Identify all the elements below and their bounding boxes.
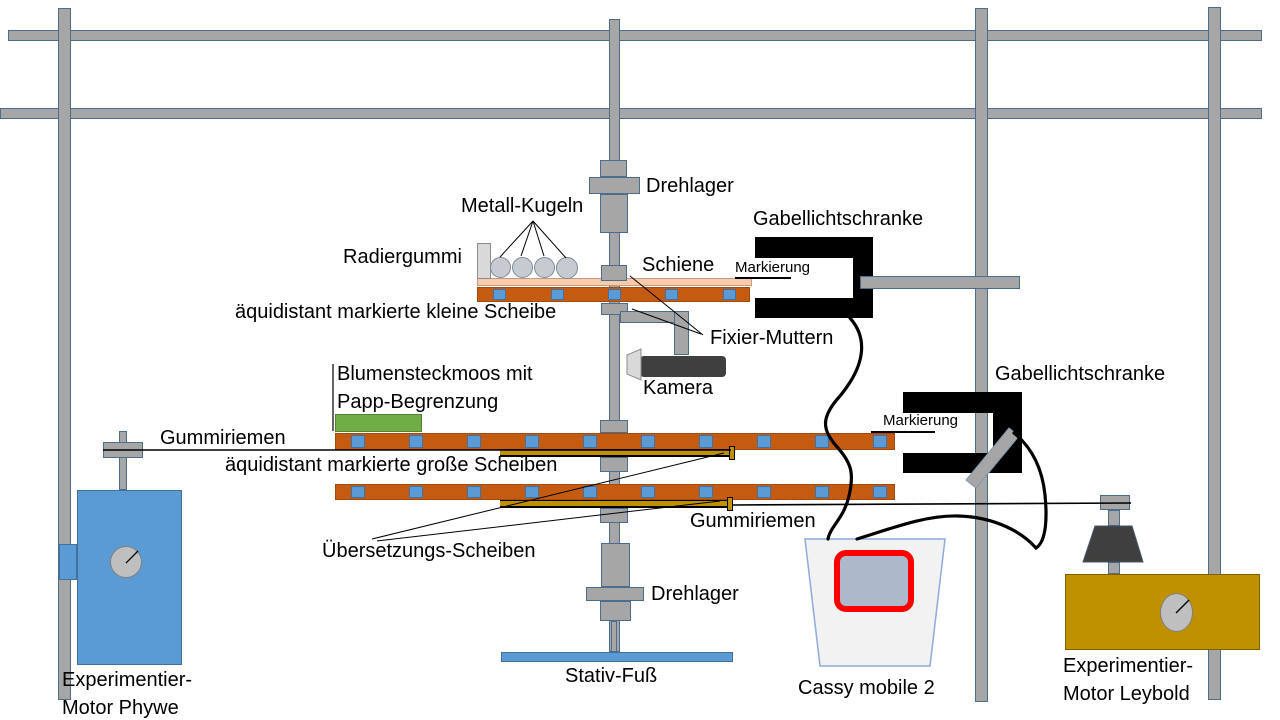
label-stativ-fuss: Stativ-Fuß — [565, 665, 657, 687]
camera-arm-vertical — [674, 311, 689, 355]
label-blumensteckmoos-line2: Papp-Begrenzung — [337, 391, 498, 413]
label-gummiriemen-left: Gummiriemen — [160, 427, 286, 449]
label-fixier-muttern: Fixier-Muttern — [710, 327, 833, 349]
cable-light-barrier-top-to-cassy — [826, 318, 862, 539]
label-gabellichtschranke-top: Gabellichtschranke — [753, 208, 923, 230]
frame-vertical-bar-middle-right — [975, 8, 988, 702]
label-cassy-mobile: Cassy mobile 2 — [798, 677, 935, 699]
left-motor-axle — [119, 431, 127, 490]
label-motor-phywe-line1: Experimentier- — [62, 669, 192, 691]
label-markierung-right: Markierung — [883, 412, 958, 429]
label-schiene: Schiene — [642, 254, 714, 276]
axle-hub — [600, 457, 628, 472]
label-metall-kugeln: Metall-Kugeln — [461, 195, 583, 217]
metal-ball — [512, 257, 533, 278]
transmission-pulley-upper-cap — [729, 446, 735, 460]
label-grosse-scheiben: äquidistant markierte große Scheiben — [225, 454, 557, 476]
right-motor-cone-pulley — [1083, 526, 1143, 562]
frame-horizontal-bar-second — [0, 108, 1262, 119]
left-motor-dial — [110, 546, 142, 578]
label-motor-phywe: Experimentier- Motor Phywe — [62, 666, 192, 720]
left-motor-side-tab — [59, 544, 77, 580]
foam-block — [335, 414, 422, 432]
camera-body — [640, 356, 726, 377]
label-motor-leybold-line1: Experimentier- — [1063, 655, 1193, 677]
axle-hub — [600, 508, 628, 523]
transmission-pulley-lower — [500, 500, 730, 508]
small-marked-disc — [477, 287, 750, 302]
pivot-bearing-top-block — [600, 160, 627, 177]
right-motor-axle-upper — [1108, 510, 1120, 526]
label-motor-phywe-line2: Motor Phywe — [62, 697, 179, 719]
label-drehlager-top: Drehlager — [646, 175, 734, 197]
label-gabellichtschranke-right: Gabellichtschranke — [995, 363, 1165, 385]
label-gummiriemen-right: Gummiriemen — [690, 510, 816, 532]
leader-metall-kugeln — [500, 221, 566, 258]
frame-horizontal-bar-top — [8, 30, 1262, 41]
fixing-nut-upper — [601, 265, 627, 281]
label-motor-leybold: Experimentier- Motor Leybold — [1063, 652, 1193, 708]
light-barrier-top-mounting-bar — [860, 276, 1020, 289]
right-motor-dial — [1160, 593, 1193, 632]
markierung-right-underline — [871, 431, 935, 433]
axle-hub — [600, 420, 628, 433]
frame-vertical-bar-left — [58, 8, 71, 700]
light-barrier-top-lower-arm — [755, 298, 873, 318]
label-motor-leybold-line2: Motor Leybold — [1063, 683, 1190, 705]
label-blumensteckmoos: Blumensteckmoos mit Papp-Begrenzung — [337, 360, 533, 416]
metal-ball — [556, 257, 578, 279]
label-kamera: Kamera — [643, 377, 713, 399]
camera-lens — [627, 349, 641, 380]
pivot-bearing-bottom-block — [601, 543, 630, 587]
stand-base — [501, 652, 733, 662]
right-motor-axle-lower — [1108, 562, 1120, 574]
label-kleine-scheibe: äquidistant markierte kleine Scheibe — [235, 301, 556, 323]
pivot-bearing-bottom-block — [586, 587, 644, 601]
markierung-top-underline — [735, 277, 791, 279]
big-marked-disc-upper — [335, 433, 895, 450]
pivot-bearing-top-block — [589, 177, 640, 194]
rubber-belt-lower — [733, 503, 1131, 505]
cassy-screen — [837, 553, 911, 609]
big-marked-disc-lower — [335, 484, 895, 500]
transmission-pulley-lower-cap — [727, 497, 733, 511]
eraser-radiergummi — [477, 243, 491, 279]
metal-ball — [534, 257, 555, 278]
label-blumensteckmoos-line1: Blumensteckmoos mit — [337, 363, 533, 385]
label-uebersetzungs-scheiben: Übersetzungs-Scheiben — [322, 540, 535, 562]
pivot-bearing-bottom-block — [600, 601, 631, 621]
pivot-bearing-top-block — [600, 194, 628, 233]
label-markierung-top: Markierung — [735, 259, 810, 276]
right-motor-belt-cap — [1100, 495, 1130, 510]
metal-ball — [490, 257, 511, 278]
label-radiergummi: Radiergummi — [343, 246, 462, 268]
light-barrier-right-lower-arm — [903, 453, 1022, 473]
label-drehlager-bottom: Drehlager — [651, 583, 739, 605]
left-motor-pulley — [103, 442, 143, 458]
base-rod — [611, 621, 617, 652]
cassy-body — [805, 539, 945, 666]
experiment-diagram: Drehlager Metall-Kugeln Radiergummi Schi… — [0, 0, 1280, 720]
